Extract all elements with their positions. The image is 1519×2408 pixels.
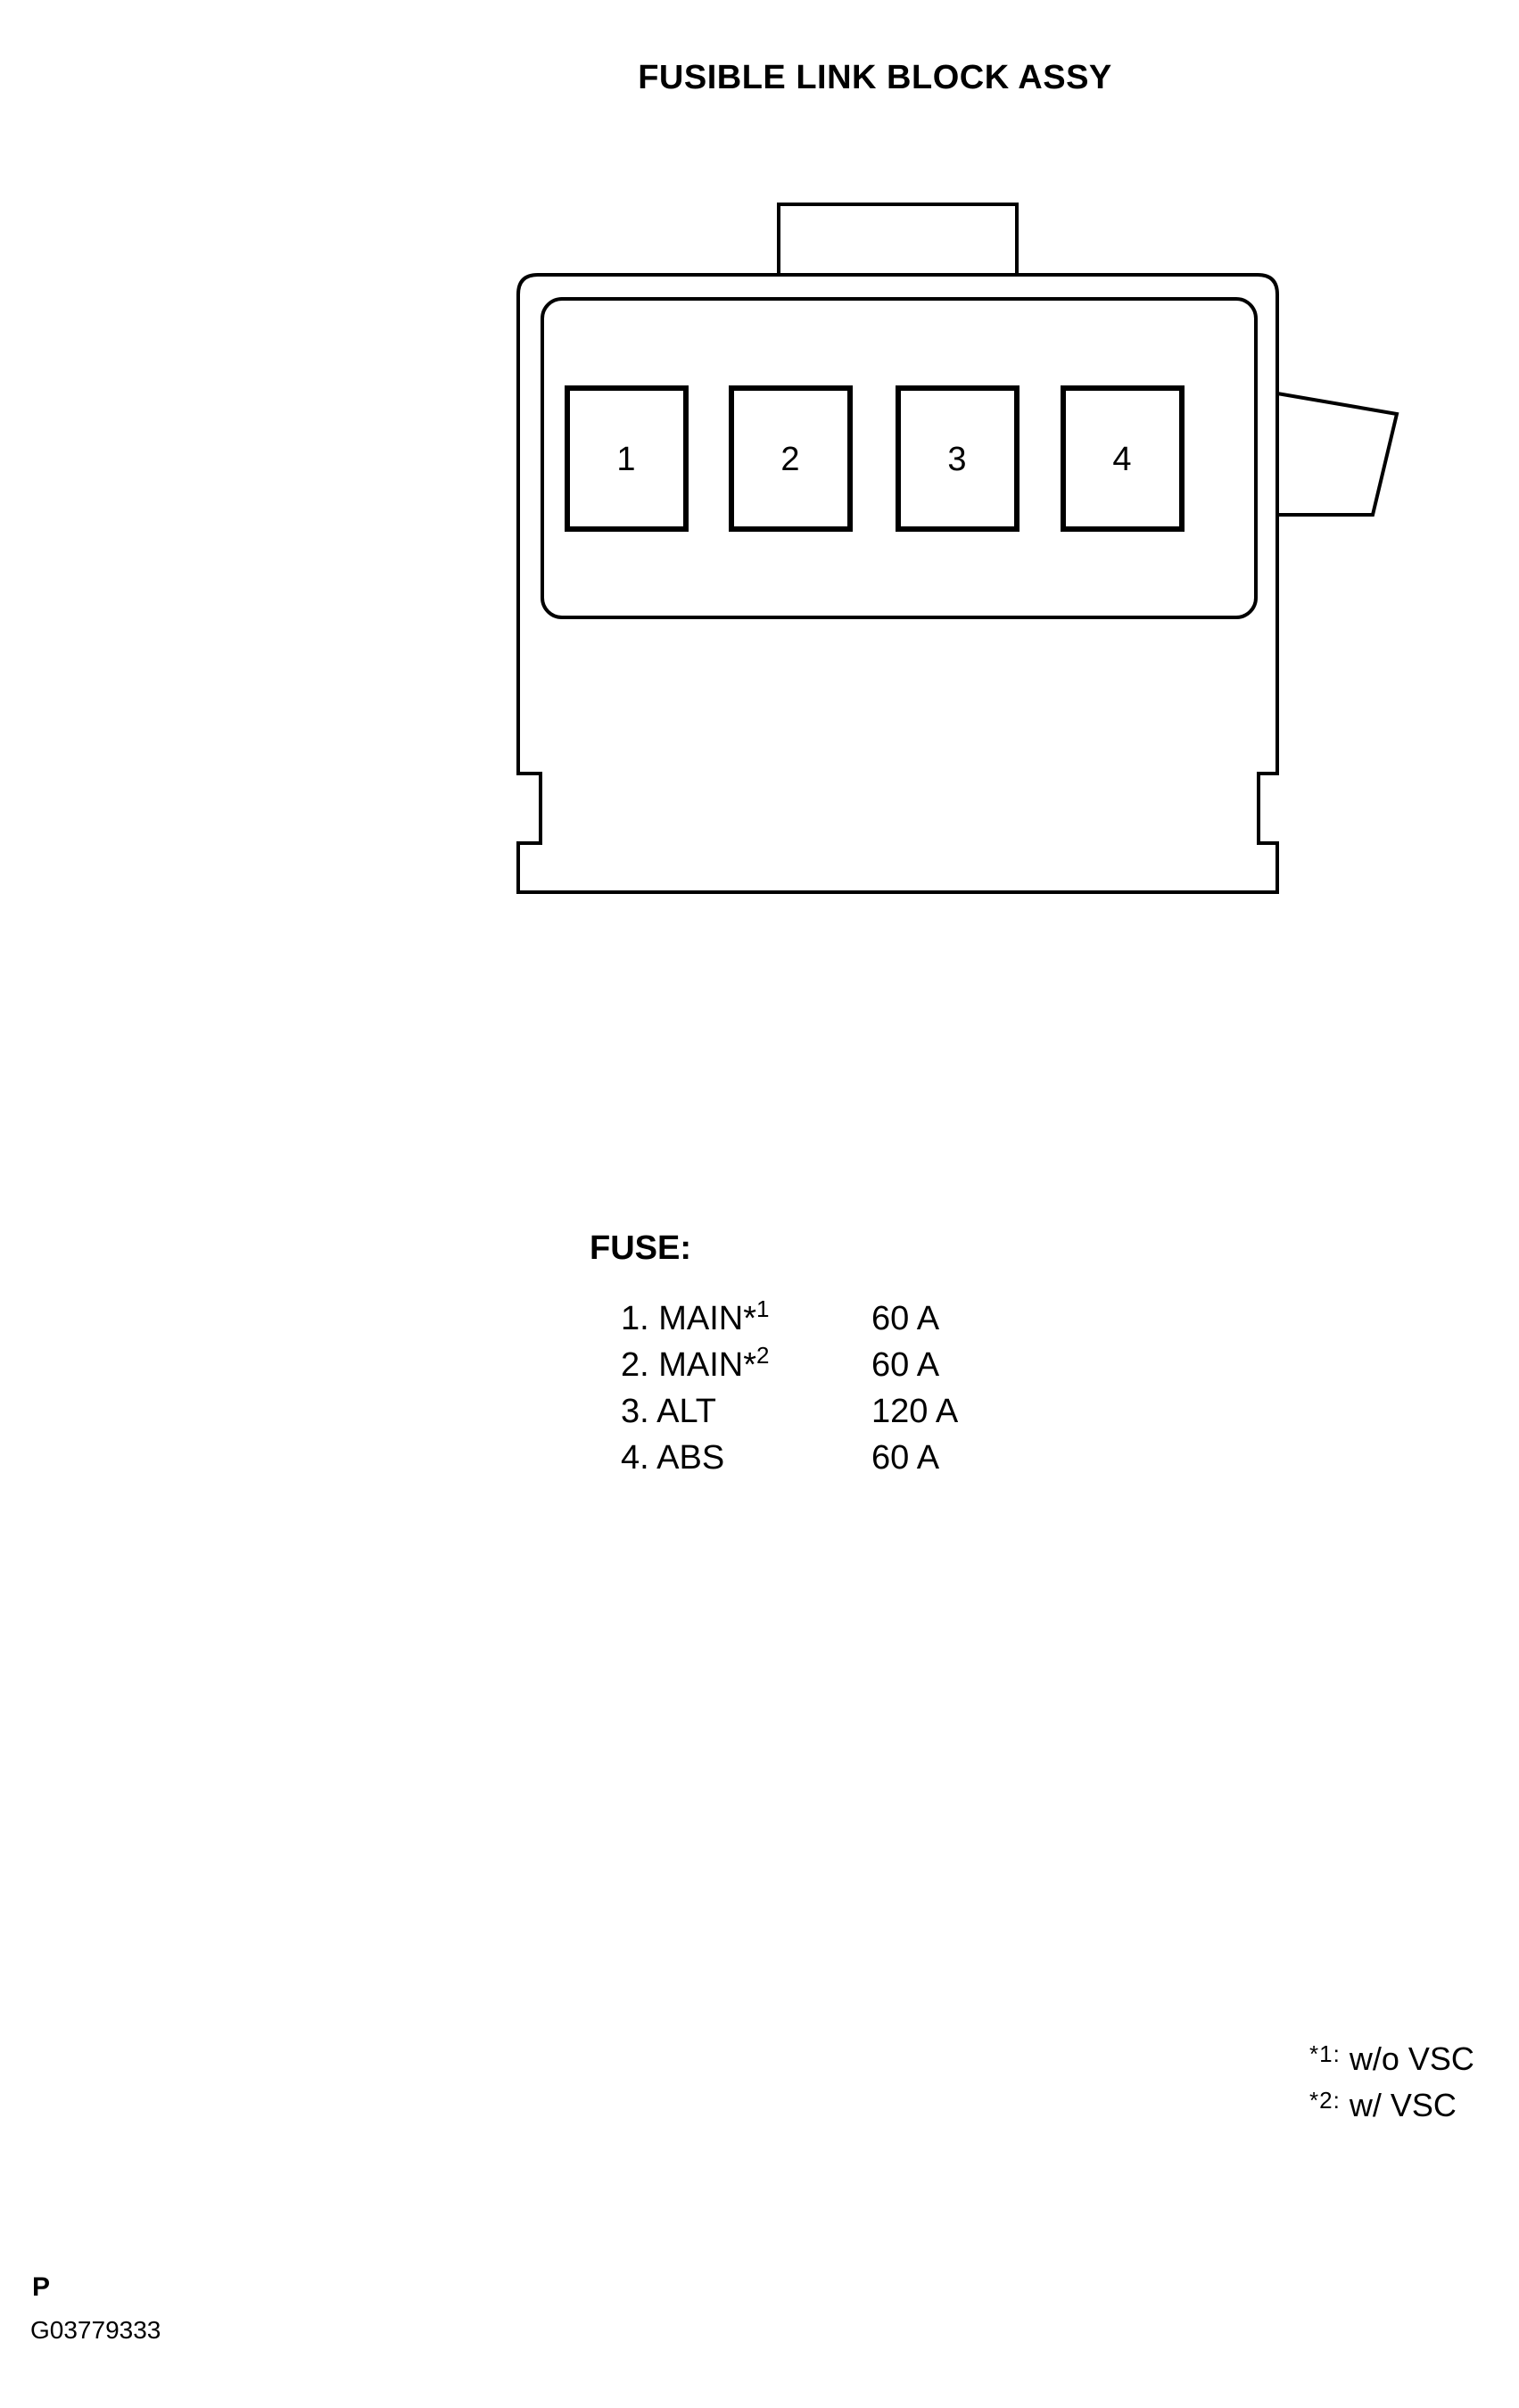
legend-item-label: 1. MAIN*1 xyxy=(621,1295,770,1342)
page: FUSIBLE LINK BLOCK ASSY 1 2 3 4 FUSE: 1.… xyxy=(0,0,1519,2408)
connector-side-flap xyxy=(1277,393,1397,515)
legend-item-label: 3. ALT xyxy=(621,1388,770,1435)
footnote-1: *1: w/o VSC xyxy=(1309,2036,1474,2082)
legend-item-amps: 120 A xyxy=(871,1388,958,1435)
page-letter: P xyxy=(32,2274,50,2301)
footnote-marker: 1 xyxy=(756,1295,769,1322)
page-title: FUSIBLE LINK BLOCK ASSY xyxy=(638,61,1112,95)
footnote-1-text: w/o VSC xyxy=(1350,2040,1474,2077)
fuse-slot-number: 4 xyxy=(1112,441,1131,478)
legend-heading: FUSE: xyxy=(590,1231,691,1265)
footnote-1-marker: *1: xyxy=(1309,2040,1341,2067)
footnote-2-text: w/ VSC xyxy=(1350,2087,1457,2123)
legend-item-label: 2. MAIN*2 xyxy=(621,1342,770,1388)
legend-label-column: 1. MAIN*1 2. MAIN*2 3. ALT 4. ABS xyxy=(621,1295,770,1481)
fuse-slot-number: 1 xyxy=(616,441,635,478)
fusible-link-block-diagram: 1 2 3 4 xyxy=(499,187,1418,910)
footnote-2-marker: *2: xyxy=(1309,2087,1341,2114)
legend-item-amps: 60 A xyxy=(871,1342,958,1388)
footnotes: *1: w/o VSC *2: w/ VSC xyxy=(1309,2036,1474,2129)
connector-top-tab xyxy=(779,204,1017,275)
fuse-slot-number: 2 xyxy=(780,441,799,478)
legend-item-amps: 60 A xyxy=(871,1435,958,1481)
legend-amps-column: 60 A 60 A 120 A 60 A xyxy=(871,1295,958,1481)
footnote-2: *2: w/ VSC xyxy=(1309,2082,1474,2129)
footnote-marker: 2 xyxy=(756,1342,769,1369)
figure-id: G03779333 xyxy=(30,2318,161,2343)
fuse-slot-number: 3 xyxy=(947,441,966,478)
legend-item-label: 4. ABS xyxy=(621,1435,770,1481)
legend-item-amps: 60 A xyxy=(871,1295,958,1342)
